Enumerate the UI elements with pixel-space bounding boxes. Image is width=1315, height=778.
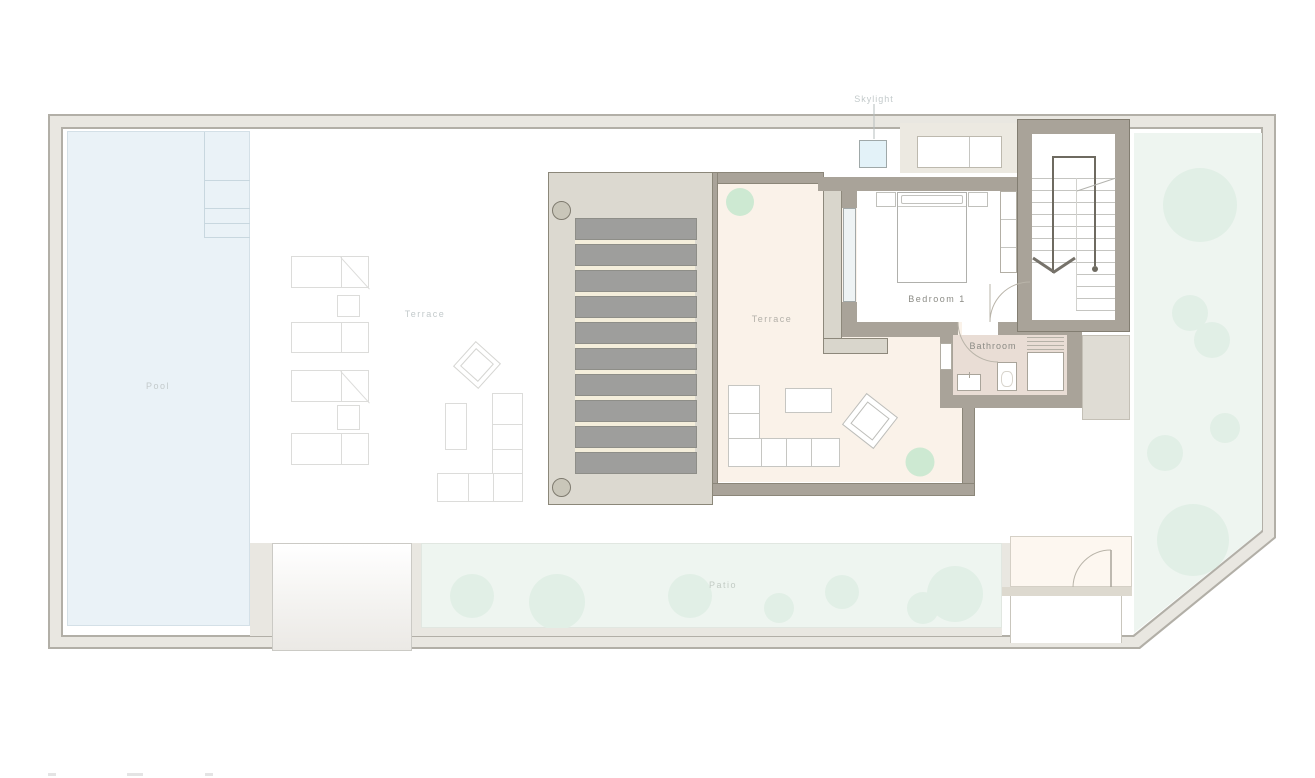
pergola-slat (575, 244, 697, 266)
pergola-column (552, 478, 571, 497)
boundary-fill (421, 628, 1002, 636)
pergola-slat (575, 452, 697, 474)
nightstand (876, 192, 896, 207)
pergola-column (552, 201, 571, 220)
wardrobe (917, 136, 1002, 168)
sink (957, 374, 981, 391)
pool-label: Pool (128, 381, 188, 391)
deck-terrace-label: Terrace (390, 309, 460, 319)
tree (726, 188, 754, 216)
boundary-fill (250, 543, 272, 636)
pergola-slat-area (575, 218, 695, 474)
main-terrace-label: Terrace (737, 314, 807, 324)
tree (764, 593, 794, 623)
terrace-top-wall (706, 172, 824, 184)
pergola-slat (575, 400, 697, 422)
nightstand (968, 192, 988, 207)
bathroom-bottom-wall (940, 395, 1082, 408)
terrace-coffee-table (785, 388, 832, 413)
pillow (901, 195, 963, 204)
tree (927, 566, 983, 622)
bathroom-window (940, 343, 952, 370)
deck-sofa-horizontal (437, 473, 523, 502)
bedroom-label: Bedroom 1 (897, 294, 977, 304)
pergola-slat (575, 374, 697, 396)
wardrobe-band (900, 123, 1018, 173)
stair-center-line (1076, 178, 1077, 310)
bedroom-closet (1000, 191, 1017, 273)
pool-step-line (204, 180, 250, 181)
pergola-slat (575, 218, 697, 240)
bedroom-left-wall (842, 191, 857, 208)
tree (825, 575, 859, 609)
cropped-footer-mark (205, 773, 213, 776)
toilet (997, 362, 1017, 391)
tree (529, 574, 585, 630)
stair-well (1032, 134, 1115, 320)
tree (1147, 435, 1183, 471)
entrance-wall (1002, 587, 1132, 596)
bathroom-label: Bathroom (955, 341, 1031, 351)
sun-lounger (291, 256, 369, 288)
pergola-slat (575, 322, 697, 344)
cropped-footer-mark (48, 773, 56, 776)
bedroom-window (843, 208, 856, 302)
terrace-sofa-horizontal (728, 438, 840, 467)
pool-step-line (204, 223, 250, 224)
tree (1194, 322, 1230, 358)
deck-side-table (445, 403, 467, 450)
shower (1027, 337, 1064, 391)
pergola-slat (575, 348, 697, 370)
pool-step-line (204, 237, 250, 238)
pool-area (67, 131, 250, 626)
sun-lounger (291, 322, 369, 353)
tree (1210, 413, 1240, 443)
bedroom-pilaster (823, 178, 842, 354)
cropped-footer-mark (127, 773, 143, 776)
bedroom-left-wall (842, 302, 857, 322)
side-walkway (1082, 335, 1130, 420)
tree (1157, 504, 1229, 576)
bathroom-right-wall (1067, 335, 1082, 395)
tree (906, 448, 935, 477)
skylight (859, 140, 887, 168)
pool-steps-divider (204, 132, 205, 237)
lounger-side-table (337, 405, 360, 430)
pergola-slat (575, 296, 697, 318)
skylight-label: Skylight (844, 94, 904, 104)
bedroom-top-wall (818, 177, 1018, 191)
tree (450, 574, 494, 618)
pergola-slat (575, 426, 697, 448)
tree (1163, 168, 1237, 242)
entrance-room (1010, 536, 1132, 587)
pergola-frame (548, 172, 713, 505)
pergola-slat (575, 270, 697, 292)
utility-box (272, 543, 412, 651)
patio-label: Patio (693, 580, 753, 590)
sun-lounger (291, 433, 369, 465)
bedroom-pilaster-foot (823, 338, 888, 354)
bed (897, 192, 967, 283)
boundary-fill (412, 543, 421, 636)
lounger-side-table (337, 295, 360, 317)
deck-sofa-vertical (492, 393, 523, 474)
pool-step-line (204, 208, 250, 209)
sheet-line (898, 206, 966, 207)
terrace-right-wall (962, 400, 975, 484)
sun-lounger (291, 370, 369, 402)
entrance-passage (1010, 596, 1122, 643)
terrace-bottom-wall (706, 483, 975, 496)
floor-plan: Pool Terrace Patio (0, 0, 1315, 778)
